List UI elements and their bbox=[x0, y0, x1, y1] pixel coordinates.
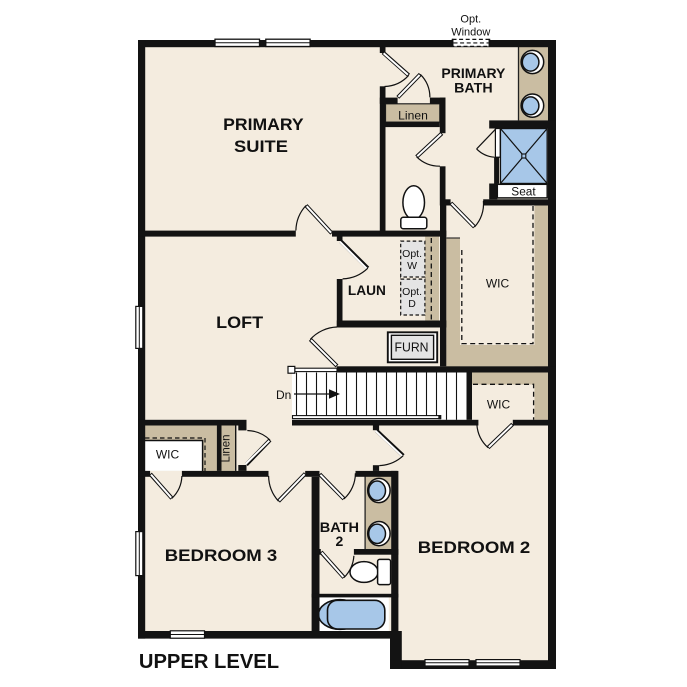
svg-text:BATH: BATH bbox=[454, 80, 493, 96]
svg-text:Opt.: Opt. bbox=[402, 248, 422, 260]
svg-text:Dn: Dn bbox=[276, 388, 291, 402]
svg-text:FURN: FURN bbox=[395, 341, 429, 355]
svg-text:LOFT: LOFT bbox=[216, 314, 263, 332]
svg-text:Linen: Linen bbox=[398, 108, 428, 122]
svg-text:2: 2 bbox=[336, 533, 344, 549]
svg-text:WIC: WIC bbox=[156, 448, 180, 462]
svg-text:UPPER LEVEL: UPPER LEVEL bbox=[139, 650, 279, 673]
svg-text:WIC: WIC bbox=[486, 277, 510, 291]
svg-text:W: W bbox=[407, 260, 417, 272]
svg-text:BEDROOM 2: BEDROOM 2 bbox=[418, 539, 531, 557]
svg-text:PRIMARY: PRIMARY bbox=[223, 116, 304, 134]
svg-text:Window: Window bbox=[451, 26, 490, 38]
svg-text:Opt.: Opt. bbox=[460, 14, 481, 26]
svg-text:Linen: Linen bbox=[221, 435, 233, 463]
svg-text:SUITE: SUITE bbox=[234, 138, 288, 156]
svg-text:Seat: Seat bbox=[511, 187, 536, 199]
svg-text:D: D bbox=[408, 298, 416, 310]
svg-text:LAUN: LAUN bbox=[348, 283, 386, 298]
svg-text:Opt.: Opt. bbox=[402, 286, 422, 298]
svg-text:BEDROOM 3: BEDROOM 3 bbox=[165, 547, 278, 565]
svg-text:WIC: WIC bbox=[487, 398, 511, 412]
